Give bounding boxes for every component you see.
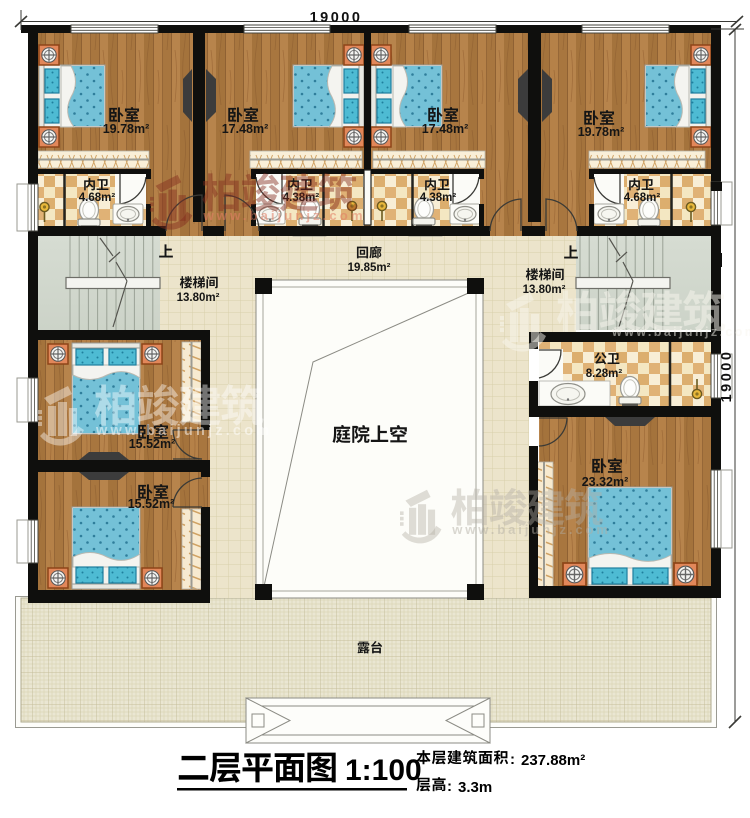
svg-text:www.baijunjz.com: www.baijunjz.com [611, 325, 750, 339]
svg-text:4.68m²: 4.68m² [624, 192, 661, 204]
svg-text:19.85m²: 19.85m² [348, 262, 391, 274]
svg-text:4.68m²: 4.68m² [79, 192, 116, 204]
svg-text:1:100: 1:100 [345, 754, 422, 787]
svg-text:19.78m²: 19.78m² [578, 125, 625, 139]
svg-text:19000: 19000 [310, 10, 363, 26]
svg-text:www.baijunjz.com: www.baijunjz.com [95, 423, 272, 439]
svg-text:17.48m²: 17.48m² [222, 122, 269, 136]
svg-text:15.52m²: 15.52m² [129, 437, 176, 451]
svg-text:17.48m²: 17.48m² [422, 122, 469, 136]
svg-text::: : [510, 751, 515, 768]
svg-text:3.3m: 3.3m [458, 779, 492, 796]
svg-text::: : [447, 778, 452, 795]
svg-text:4.38m²: 4.38m² [420, 192, 457, 204]
svg-text:13.80m²: 13.80m² [177, 292, 220, 304]
svg-text:15.52m²: 15.52m² [128, 497, 175, 511]
svg-text:237.88m²: 237.88m² [521, 752, 585, 769]
svg-text:8.28m²: 8.28m² [586, 368, 623, 380]
svg-text:19000: 19000 [719, 350, 735, 403]
svg-text:19.78m²: 19.78m² [103, 122, 150, 136]
svg-text:www.baijunjz.com: www.baijunjz.com [202, 208, 365, 223]
svg-text:www.baijunjz.com: www.baijunjz.com [451, 522, 611, 537]
svg-text:23.32m²: 23.32m² [582, 475, 629, 489]
